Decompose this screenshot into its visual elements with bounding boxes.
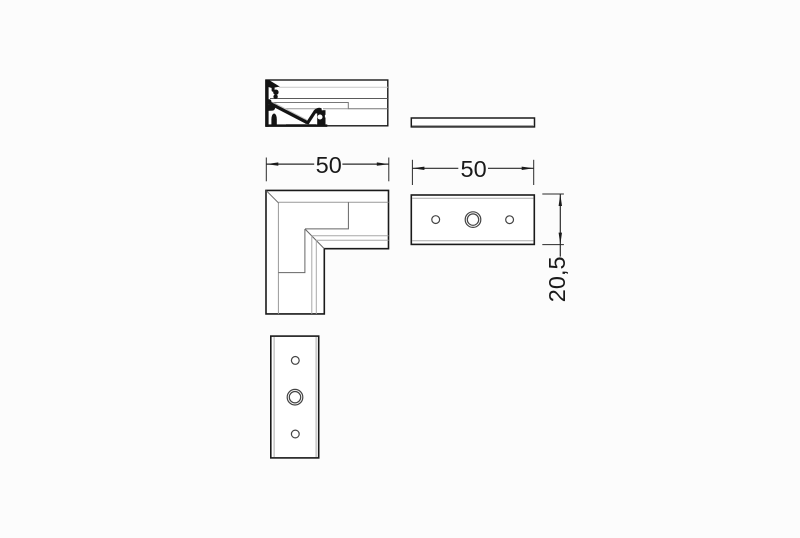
svg-text:20,5: 20,5 <box>544 256 570 302</box>
svg-text:50: 50 <box>461 156 487 182</box>
svg-text:50: 50 <box>316 152 342 178</box>
